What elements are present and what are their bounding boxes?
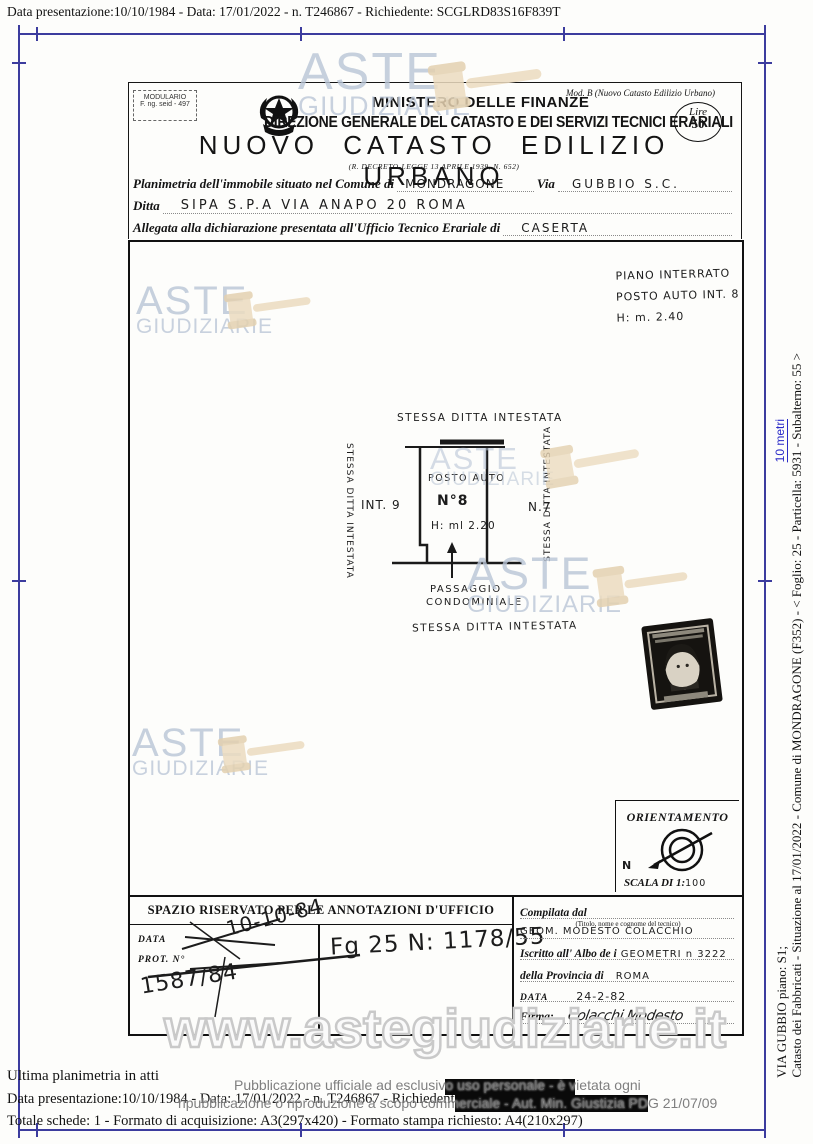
frame-tick [563, 27, 565, 41]
frame-tick [300, 27, 302, 41]
plan-label-left: STESSA DITTA INTESTATA [344, 443, 354, 579]
mod-b-label: Mod. B (Nuovo Catasto Edilizio Urbano) [566, 88, 715, 98]
plan-posto-auto: POSTO AUTO [428, 473, 505, 484]
sidebar-cadastral-line: Catasto dei Fabbricati - Situazione al 1… [789, 353, 805, 1078]
sidebar-address-line: VIA GUBBIO piano: S1; [774, 946, 790, 1078]
footer-disclaimer2: ripubblicazione o riproduzione a scopo c… [178, 1095, 717, 1111]
plan-height: H: ml 2.20 [431, 520, 496, 532]
top-presentation-line: Data presentazione:10/10/1984 - Data: 17… [7, 4, 561, 20]
compass-icon [638, 827, 718, 873]
plan-passaggio1: PASSAGGIO [430, 584, 502, 595]
ufficio-label: Allegata alla dichiarazione presentata a… [133, 220, 500, 236]
orientamento-label: ORIENTAMENTO [616, 810, 739, 825]
compiler-subtitle: (Titolo, nome e cognome del tecnico) [514, 920, 742, 928]
plan-n7: N.7 [528, 500, 551, 514]
scale-link[interactable]: 10 metri [773, 419, 787, 462]
frame-tick [12, 580, 26, 582]
decree-line: (R. DECRETO-LEGGE 13 APRILE 1939, N. 652… [128, 162, 740, 171]
frame-tick [758, 580, 772, 582]
revenue-stamp-icon [637, 613, 728, 714]
scala-value: 100 [685, 878, 706, 889]
firma-signature: Colacchi Modesto [566, 1008, 684, 1024]
frame-tick [12, 62, 26, 64]
scribble-marks [130, 897, 512, 1030]
comune-value: MONDRAGONE [405, 177, 504, 191]
ufficio-value: CASERTA [521, 221, 589, 235]
frame-tick [36, 27, 38, 41]
modulario-line2: F. ng. seid - 497 [134, 101, 196, 108]
compiler-box: Compilata dal GEOM. MODESTO COLACCHIO (T… [514, 897, 742, 1034]
scala-label: SCALA DI 1: [624, 877, 685, 889]
footer-line2: Totale schede: 1 - Formato di acquisizio… [7, 1113, 583, 1130]
annotations-office-box: SPAZIO RISERVATO PER LE ANNOTAZIONI D'UF… [130, 897, 514, 1034]
plan-label-top: STESSA DITTA INTESTATA [397, 412, 563, 424]
footer-disclaimer1: Pubblicazione ufficiale ad esclusivo uso… [234, 1077, 641, 1093]
frame-top [18, 33, 766, 35]
north-label: N [622, 859, 632, 872]
via-value: GUBBIO S.C. [572, 177, 680, 191]
ditta-label: Ditta [133, 198, 160, 214]
ditta-value: SIPA S.P.A VIA ANAPO 20 ROMA [181, 198, 468, 213]
modulario-box: MODULARIO F. ng. seid - 497 [133, 90, 197, 121]
plan-n8: N°8 [437, 493, 468, 509]
annotations-row: SPAZIO RISERVATO PER LE ANNOTAZIONI D'UF… [128, 895, 744, 1036]
plan-passaggio2: CONDOMINIALE [426, 597, 523, 608]
frame-tick [758, 62, 772, 64]
via-label: Via [537, 176, 555, 192]
footer-ultima: Ultima planimetria in atti [7, 1068, 159, 1085]
direzione-title: DIREZIONE GENERALE DEL CATASTO E DEI SER… [264, 112, 733, 130]
orientation-box: ORIENTAMENTO N SCALA DI 1:100 [615, 800, 739, 892]
plan-int9: INT. 9 [361, 498, 401, 512]
form-line1-label: Planimetria dell'immobile situato nel Co… [133, 176, 394, 192]
modulario-line1: MODULARIO [134, 94, 196, 101]
firma-label: Firma: [520, 1011, 554, 1023]
